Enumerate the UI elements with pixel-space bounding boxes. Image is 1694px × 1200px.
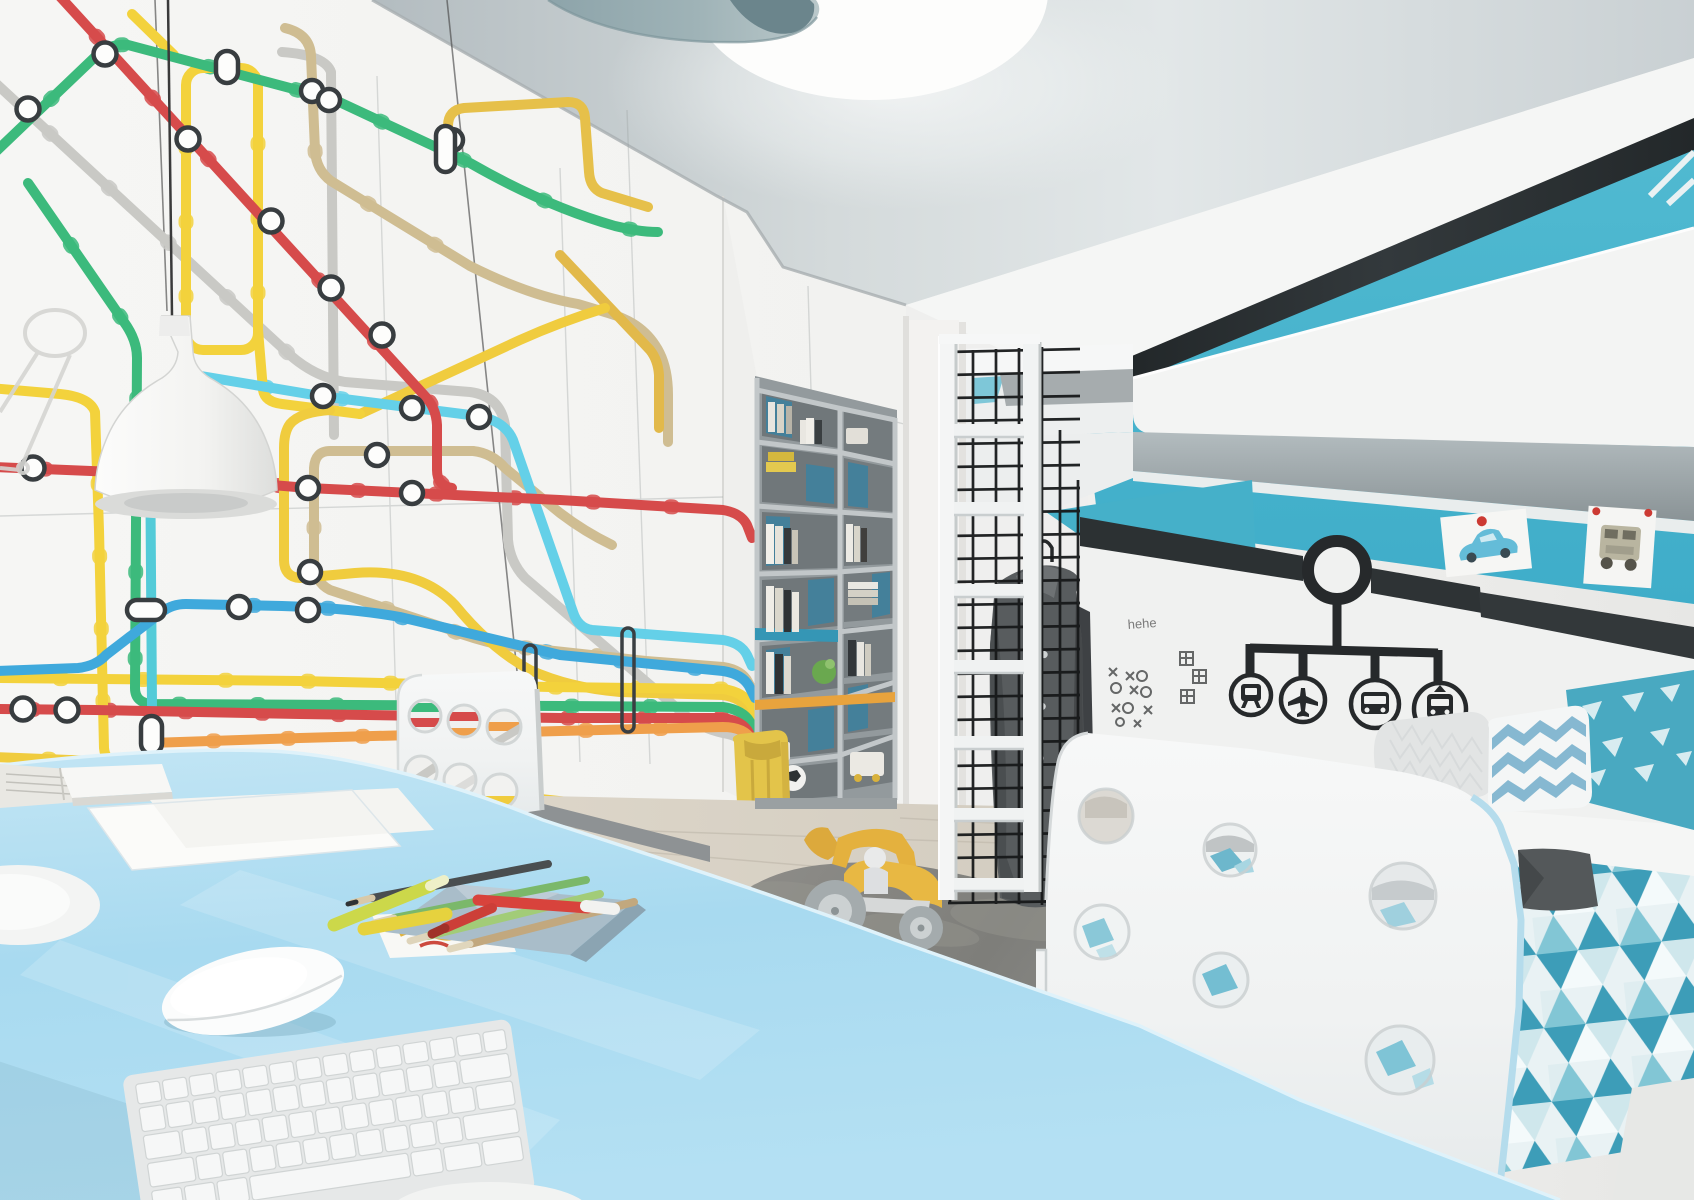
svg-text:hehe: hehe	[1127, 615, 1157, 632]
